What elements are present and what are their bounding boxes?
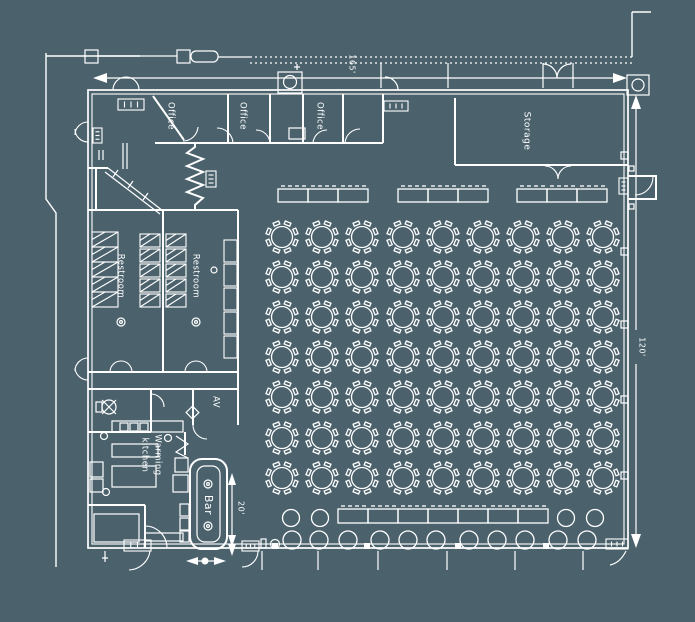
chair bbox=[414, 279, 419, 286]
round-table bbox=[467, 221, 499, 253]
chair bbox=[485, 221, 492, 226]
chair bbox=[273, 248, 280, 253]
chair bbox=[346, 319, 351, 326]
round-table bbox=[467, 381, 499, 413]
chair bbox=[474, 341, 481, 346]
chair bbox=[405, 288, 412, 293]
banquet-hall-floor-plan: 165' 120' bbox=[0, 0, 695, 622]
chair bbox=[534, 348, 539, 355]
chair bbox=[507, 228, 512, 235]
chair bbox=[454, 268, 459, 275]
chair bbox=[525, 422, 532, 427]
chair bbox=[554, 381, 561, 386]
chair bbox=[266, 319, 271, 326]
stall-bank bbox=[166, 234, 186, 307]
chair bbox=[324, 341, 331, 346]
chair bbox=[266, 268, 271, 275]
chair bbox=[427, 348, 432, 355]
chair bbox=[594, 422, 601, 427]
chair bbox=[445, 261, 452, 266]
round-table bbox=[427, 221, 459, 253]
chair bbox=[525, 301, 532, 306]
chair bbox=[605, 288, 612, 293]
chair bbox=[333, 429, 338, 436]
chair bbox=[547, 319, 552, 326]
chair bbox=[534, 429, 539, 436]
chair bbox=[346, 279, 351, 286]
chair bbox=[485, 248, 492, 253]
round-table bbox=[507, 422, 539, 454]
chair bbox=[394, 368, 401, 373]
chair bbox=[353, 462, 360, 467]
chair bbox=[614, 388, 619, 395]
chair bbox=[587, 239, 592, 246]
chair bbox=[614, 319, 619, 326]
chair bbox=[414, 239, 419, 246]
chair bbox=[405, 449, 412, 454]
round-table bbox=[387, 301, 419, 333]
chair bbox=[434, 368, 441, 373]
chair bbox=[273, 381, 280, 386]
chair bbox=[467, 308, 472, 315]
chair bbox=[594, 221, 601, 226]
round-table bbox=[306, 301, 338, 333]
chair bbox=[594, 449, 601, 454]
chair bbox=[313, 288, 320, 293]
chair bbox=[574, 279, 579, 286]
chair bbox=[364, 368, 371, 373]
chair bbox=[467, 239, 472, 246]
chair bbox=[346, 399, 351, 406]
top-corridor bbox=[85, 50, 632, 90]
chair bbox=[614, 348, 619, 355]
chair bbox=[474, 422, 481, 427]
chair bbox=[587, 268, 592, 275]
chair bbox=[525, 381, 532, 386]
chair bbox=[547, 480, 552, 487]
chair bbox=[534, 239, 539, 246]
round-table bbox=[306, 422, 338, 454]
chair bbox=[434, 422, 441, 427]
chair bbox=[284, 301, 291, 306]
chair bbox=[427, 440, 432, 447]
room-label-kitchen-line2: kitchen bbox=[140, 438, 150, 473]
round-table bbox=[507, 381, 539, 413]
chair bbox=[306, 359, 311, 366]
chair bbox=[525, 408, 532, 413]
chair bbox=[454, 308, 459, 315]
chair bbox=[405, 408, 412, 413]
cocktail-table bbox=[587, 510, 604, 527]
chair bbox=[547, 388, 552, 395]
chair bbox=[324, 381, 331, 386]
chair bbox=[364, 248, 371, 253]
chair bbox=[454, 440, 459, 447]
chair bbox=[525, 248, 532, 253]
chair bbox=[525, 221, 532, 226]
chair bbox=[405, 328, 412, 333]
chair bbox=[507, 279, 512, 286]
buffet-table bbox=[308, 189, 338, 202]
round-table bbox=[427, 422, 459, 454]
chair bbox=[353, 489, 360, 494]
chair bbox=[364, 341, 371, 346]
chair bbox=[387, 268, 392, 275]
chair bbox=[554, 462, 561, 467]
round-table bbox=[346, 462, 378, 494]
chair bbox=[565, 408, 572, 413]
chair bbox=[445, 381, 452, 386]
chair bbox=[474, 248, 481, 253]
chair bbox=[414, 440, 419, 447]
chair bbox=[266, 429, 271, 436]
chair bbox=[574, 388, 579, 395]
chair bbox=[565, 449, 572, 454]
chair bbox=[474, 328, 481, 333]
chair bbox=[346, 359, 351, 366]
chair bbox=[427, 319, 432, 326]
round-table bbox=[467, 462, 499, 494]
chair bbox=[414, 359, 419, 366]
round-table bbox=[547, 301, 579, 333]
chair bbox=[405, 301, 412, 306]
chair bbox=[614, 308, 619, 315]
chair bbox=[306, 279, 311, 286]
chair bbox=[364, 381, 371, 386]
round-table bbox=[346, 422, 378, 454]
chair bbox=[507, 348, 512, 355]
chair bbox=[454, 279, 459, 286]
chair bbox=[373, 469, 378, 476]
chair bbox=[293, 399, 298, 406]
chair bbox=[507, 268, 512, 275]
chair bbox=[467, 440, 472, 447]
buffet-table bbox=[458, 189, 488, 202]
chair bbox=[373, 319, 378, 326]
chair bbox=[434, 221, 441, 226]
round-seat bbox=[488, 531, 506, 549]
round-seat bbox=[399, 531, 417, 549]
chair bbox=[467, 348, 472, 355]
chair bbox=[293, 440, 298, 447]
chair bbox=[494, 228, 499, 235]
chair bbox=[614, 440, 619, 447]
chair bbox=[434, 261, 441, 266]
chair bbox=[554, 261, 561, 266]
chair bbox=[574, 359, 579, 366]
chair bbox=[565, 261, 572, 266]
chair bbox=[594, 381, 601, 386]
chair bbox=[445, 248, 452, 253]
room-labels: Office Office Office Storage Restroom Re… bbox=[116, 102, 532, 530]
chair bbox=[306, 440, 311, 447]
chair bbox=[266, 440, 271, 447]
buffet-table bbox=[368, 509, 398, 523]
stall-bank bbox=[224, 240, 237, 358]
room-label-storage: Storage bbox=[522, 112, 532, 151]
chair bbox=[284, 368, 291, 373]
chair bbox=[547, 279, 552, 286]
chair bbox=[284, 288, 291, 293]
chair bbox=[427, 429, 432, 436]
chair bbox=[306, 348, 311, 355]
chair bbox=[333, 239, 338, 246]
chair bbox=[324, 248, 331, 253]
chair bbox=[273, 408, 280, 413]
chair bbox=[605, 328, 612, 333]
bottom-left-room bbox=[88, 505, 183, 570]
round-table bbox=[266, 341, 298, 373]
chair bbox=[427, 268, 432, 275]
chair bbox=[494, 308, 499, 315]
dim-right-label: 120' bbox=[638, 337, 647, 356]
chair bbox=[266, 228, 271, 235]
chair bbox=[273, 489, 280, 494]
chair bbox=[445, 328, 452, 333]
chair bbox=[364, 462, 371, 467]
chair bbox=[364, 288, 371, 293]
chair bbox=[594, 328, 601, 333]
round-table bbox=[467, 261, 499, 293]
chair bbox=[346, 268, 351, 275]
chair bbox=[266, 239, 271, 246]
chair bbox=[507, 388, 512, 395]
chair bbox=[434, 489, 441, 494]
round-seat bbox=[427, 531, 445, 549]
chair bbox=[427, 399, 432, 406]
chair bbox=[333, 268, 338, 275]
chair bbox=[387, 480, 392, 487]
chair bbox=[445, 422, 452, 427]
chair bbox=[594, 261, 601, 266]
chair bbox=[414, 388, 419, 395]
main-walls bbox=[88, 90, 628, 548]
chair bbox=[605, 261, 612, 266]
chair bbox=[387, 429, 392, 436]
chair bbox=[313, 221, 320, 226]
chair bbox=[306, 319, 311, 326]
cocktail-table bbox=[283, 510, 300, 527]
chair bbox=[434, 301, 441, 306]
chair bbox=[284, 422, 291, 427]
chair bbox=[467, 319, 472, 326]
round-table bbox=[507, 301, 539, 333]
column-post bbox=[364, 543, 370, 549]
chair bbox=[394, 328, 401, 333]
chair bbox=[293, 348, 298, 355]
chair bbox=[514, 288, 521, 293]
chair bbox=[306, 388, 311, 395]
chair bbox=[293, 268, 298, 275]
round-table bbox=[306, 381, 338, 413]
round-seat bbox=[339, 531, 357, 549]
chair bbox=[485, 381, 492, 386]
chair bbox=[364, 301, 371, 306]
chair bbox=[306, 268, 311, 275]
chair bbox=[324, 462, 331, 467]
chair bbox=[427, 480, 432, 487]
chair bbox=[394, 408, 401, 413]
chair bbox=[266, 308, 271, 315]
buffet-table bbox=[398, 189, 428, 202]
chair bbox=[405, 261, 412, 266]
chair bbox=[353, 221, 360, 226]
chair bbox=[605, 381, 612, 386]
chair bbox=[605, 408, 612, 413]
chair bbox=[587, 480, 592, 487]
chair bbox=[454, 319, 459, 326]
room-label-office-1: Office bbox=[166, 102, 176, 130]
chair bbox=[474, 462, 481, 467]
chair bbox=[293, 480, 298, 487]
chair bbox=[445, 449, 452, 454]
chair bbox=[346, 348, 351, 355]
chair bbox=[587, 469, 592, 476]
chair bbox=[467, 388, 472, 395]
chair bbox=[525, 288, 532, 293]
storage-room bbox=[455, 98, 628, 165]
chair bbox=[565, 489, 572, 494]
chair bbox=[405, 368, 412, 373]
chair bbox=[594, 288, 601, 293]
chair bbox=[333, 319, 338, 326]
round-seat bbox=[578, 531, 596, 549]
chair bbox=[373, 239, 378, 246]
chair bbox=[266, 348, 271, 355]
chair bbox=[364, 408, 371, 413]
chair bbox=[485, 462, 492, 467]
chair bbox=[554, 449, 561, 454]
chair bbox=[353, 449, 360, 454]
chair bbox=[514, 422, 521, 427]
chair bbox=[373, 348, 378, 355]
chair bbox=[333, 399, 338, 406]
round-table bbox=[427, 381, 459, 413]
chair bbox=[507, 239, 512, 246]
chair bbox=[333, 348, 338, 355]
chair bbox=[353, 341, 360, 346]
storage-door-swings bbox=[545, 166, 571, 179]
round-table bbox=[427, 261, 459, 293]
column-post bbox=[455, 543, 461, 549]
chair bbox=[293, 319, 298, 326]
chair bbox=[514, 449, 521, 454]
chair bbox=[485, 288, 492, 293]
chair bbox=[594, 368, 601, 373]
chair bbox=[387, 228, 392, 235]
chair bbox=[605, 489, 612, 494]
tiny-annotation-marks bbox=[99, 143, 127, 169]
chair bbox=[494, 348, 499, 355]
chair bbox=[514, 368, 521, 373]
chair bbox=[534, 388, 539, 395]
chair bbox=[394, 341, 401, 346]
room-label-office-2: Office bbox=[238, 102, 248, 130]
round-table bbox=[467, 422, 499, 454]
chair bbox=[494, 388, 499, 395]
chair bbox=[474, 489, 481, 494]
chair bbox=[427, 279, 432, 286]
chair bbox=[507, 399, 512, 406]
chair bbox=[324, 261, 331, 266]
chair bbox=[353, 408, 360, 413]
chair bbox=[364, 221, 371, 226]
chair bbox=[554, 341, 561, 346]
chair bbox=[565, 462, 572, 467]
round-table bbox=[306, 341, 338, 373]
chair bbox=[587, 228, 592, 235]
chair bbox=[467, 429, 472, 436]
chair bbox=[574, 308, 579, 315]
chair bbox=[445, 462, 452, 467]
column-post bbox=[272, 543, 278, 549]
chair bbox=[554, 248, 561, 253]
chair bbox=[534, 359, 539, 366]
chair bbox=[284, 248, 291, 253]
chair bbox=[454, 239, 459, 246]
chair bbox=[346, 480, 351, 487]
chair bbox=[525, 368, 532, 373]
chair bbox=[474, 288, 481, 293]
round-table bbox=[306, 221, 338, 253]
chair bbox=[587, 359, 592, 366]
chair bbox=[587, 399, 592, 406]
chair bbox=[514, 221, 521, 226]
round-table bbox=[427, 341, 459, 373]
chair bbox=[494, 359, 499, 366]
chair bbox=[554, 408, 561, 413]
round-table bbox=[507, 341, 539, 373]
chair bbox=[474, 368, 481, 373]
chair bbox=[373, 228, 378, 235]
round-table bbox=[266, 301, 298, 333]
room-label-av: AV bbox=[211, 396, 221, 408]
chair bbox=[333, 279, 338, 286]
chair bbox=[273, 221, 280, 226]
chair bbox=[614, 228, 619, 235]
chair bbox=[313, 248, 320, 253]
chair bbox=[525, 489, 532, 494]
chair bbox=[525, 328, 532, 333]
chair bbox=[594, 301, 601, 306]
chair bbox=[445, 301, 452, 306]
chair bbox=[547, 399, 552, 406]
chair bbox=[414, 480, 419, 487]
chair bbox=[346, 440, 351, 447]
chair bbox=[293, 308, 298, 315]
chair bbox=[306, 228, 311, 235]
chair bbox=[405, 489, 412, 494]
chair bbox=[434, 328, 441, 333]
chair bbox=[565, 221, 572, 226]
chair bbox=[594, 248, 601, 253]
chair bbox=[485, 449, 492, 454]
round-table bbox=[467, 341, 499, 373]
accessible-symbol-icon bbox=[117, 318, 212, 530]
round-table bbox=[507, 462, 539, 494]
chair bbox=[514, 381, 521, 386]
chair bbox=[605, 248, 612, 253]
chair bbox=[394, 422, 401, 427]
chair bbox=[514, 341, 521, 346]
chair bbox=[373, 480, 378, 487]
chair bbox=[614, 429, 619, 436]
round-table bbox=[266, 221, 298, 253]
chair bbox=[394, 301, 401, 306]
chair bbox=[534, 228, 539, 235]
chair bbox=[554, 328, 561, 333]
chair bbox=[373, 359, 378, 366]
